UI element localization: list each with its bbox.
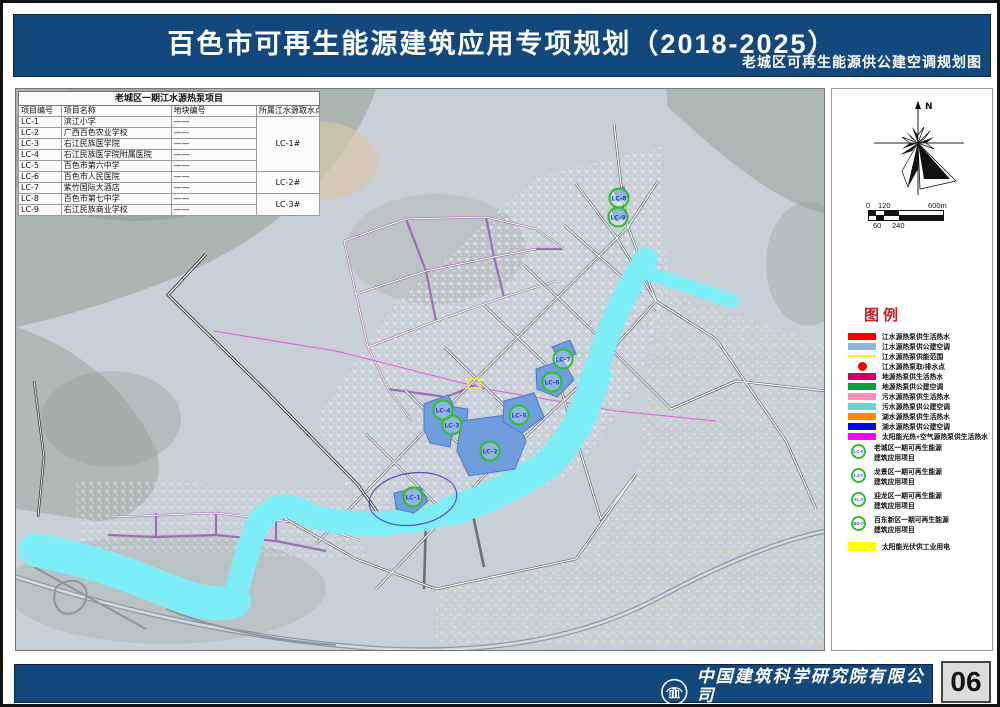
table-row: LC-6百色市人民医院——LC-2# xyxy=(19,172,320,183)
swatch xyxy=(848,413,876,420)
project-table-title: 老城区一期江水源热泵项目 xyxy=(19,92,320,106)
rose-petals xyxy=(900,127,956,189)
svg-text:LC-5: LC-5 xyxy=(511,413,526,420)
legend-item: 湖水源热泵供生活热水 xyxy=(842,411,987,421)
svg-text:LC-9: LC-9 xyxy=(610,215,625,222)
swatch xyxy=(848,393,876,400)
line-swatch xyxy=(848,355,876,358)
map-sidebar: N 0 120 600m xyxy=(831,88,993,651)
north-label: N xyxy=(925,102,933,112)
svg-text:LC-4: LC-4 xyxy=(435,408,450,415)
marker-lc4: LC-4 xyxy=(434,401,453,420)
legend-item: 江水源热泵供生活热水 xyxy=(842,331,987,341)
project-table: 老城区一期江水源热泵项目 项目编号 项目名称 地块编号 所属江水源取水点 LC-… xyxy=(18,91,320,216)
scale-bar: 0 120 600m 60 240 xyxy=(868,201,952,231)
page-subtitle: 老城区可再生能源供公建空调规划图 xyxy=(742,52,982,72)
plan-sheet: 百色市可再生能源建筑应用专项规划（2018-2025） 老城区可再生能源供公建空… xyxy=(0,0,1000,707)
legend-item: 江水源热泵供能范围 xyxy=(842,351,987,361)
marker-lc8: LC-8 xyxy=(610,189,629,208)
legend-project-item: LC-# 老城区一期可再生能源建筑应用项目 xyxy=(842,444,987,465)
marker-lc1: LC-1 xyxy=(404,488,423,507)
swatch xyxy=(848,373,876,380)
dot-swatch xyxy=(858,362,867,371)
marker-lc5: LC-5 xyxy=(510,406,529,425)
scale-label: 60 xyxy=(873,221,881,230)
legend-item: 江水源热泵取/排水点 xyxy=(842,361,987,371)
legend-title: 图例 xyxy=(864,304,987,325)
project-ring-icon: LC-# xyxy=(851,444,866,459)
swatch xyxy=(848,433,876,440)
scale-label: 600m xyxy=(928,201,947,210)
project-ring-icon: BD-# xyxy=(851,516,866,531)
svg-text:LC-8: LC-8 xyxy=(611,196,626,203)
footer-bar: 中国建筑科学研究院有限公司 China Academy of Building … xyxy=(14,664,933,703)
organization-name-cn: 中国建筑科学研究院有限公司 xyxy=(697,667,932,705)
north-arrow xyxy=(915,101,921,109)
swatch xyxy=(848,542,876,551)
svg-text:LC-1: LC-1 xyxy=(405,495,420,502)
scale-label: 0 xyxy=(866,201,870,210)
cabr-logo-icon xyxy=(660,677,689,707)
svg-text:LC-3: LC-3 xyxy=(444,423,459,430)
legend-item: 太阳能光伏供工业用电 xyxy=(842,541,987,551)
swatch xyxy=(848,333,876,340)
marker-lc2: LC-2 xyxy=(481,442,500,461)
swatch xyxy=(848,423,876,430)
legend-project-item: LJ-# 龙景区一期可再生能源建筑应用项目 xyxy=(842,468,987,489)
legend-item: 地源热泵供生活热水 xyxy=(842,371,987,381)
swatch xyxy=(848,343,876,350)
legend-item: 江水源热泵供公建空调 xyxy=(842,341,987,351)
project-ring-icon: YL-# xyxy=(851,492,866,507)
svg-text:LC-2: LC-2 xyxy=(482,449,497,456)
scale-label: 120 xyxy=(878,201,891,210)
marker-lc6: LC-6 xyxy=(543,373,562,392)
legend-item: 太阳能光热+空气源热泵供生活热水 xyxy=(842,431,987,441)
page-number: 06 xyxy=(941,661,991,703)
table-row: LC-8百色市第七中学——LC-3# xyxy=(19,194,320,205)
compass-rose: N xyxy=(860,95,970,199)
swatch xyxy=(848,403,876,410)
legend-project-item: BD-# 百东新区一期可再生能源建筑应用项目 xyxy=(842,516,987,537)
marker-lc7: LC-7 xyxy=(554,350,573,369)
intake-point-cell: LC-3# xyxy=(256,194,319,216)
intake-point-cell: LC-1# xyxy=(256,117,319,172)
swatch xyxy=(848,383,876,390)
legend-item: 地源热泵供公建空调 xyxy=(842,381,987,391)
scale-label: 240 xyxy=(892,221,905,230)
intake-point-cell: LC-2# xyxy=(256,172,319,194)
project-ring-icon: LJ-# xyxy=(851,468,866,483)
legend-item: 污水源热泵供公建空调 xyxy=(842,401,987,411)
table-row: LC-1滨江小学——LC-1# xyxy=(19,117,320,128)
svg-text:LC-7: LC-7 xyxy=(555,357,570,364)
table-header-row: 项目编号 项目名称 地块编号 所属江水源取水点 xyxy=(19,106,320,117)
marker-lc9: LC-9 xyxy=(609,208,628,227)
title-bar: 百色市可再生能源建筑应用专项规划（2018-2025） 老城区可再生能源供公建空… xyxy=(13,14,991,77)
satellite-map: LC-1 LC-2 LC-3 LC-4 LC-5 LC-6 LC-7 LC-8 … xyxy=(15,88,825,651)
legend-item: 污水源热泵供生活热水 xyxy=(842,391,987,401)
legend-project-item: YL-# 迎龙区一期可再生能源建筑应用项目 xyxy=(842,492,987,513)
svg-text:LC-6: LC-6 xyxy=(544,380,559,387)
legend: 图例 江水源热泵供生活热水 江水源热泵供公建空调 江水源热泵供能范围 江水源热泵… xyxy=(842,304,987,551)
organization-brand: 中国建筑科学研究院有限公司 China Academy of Building … xyxy=(660,667,932,707)
legend-item: 湖水源热泵供公建空调 xyxy=(842,421,987,431)
